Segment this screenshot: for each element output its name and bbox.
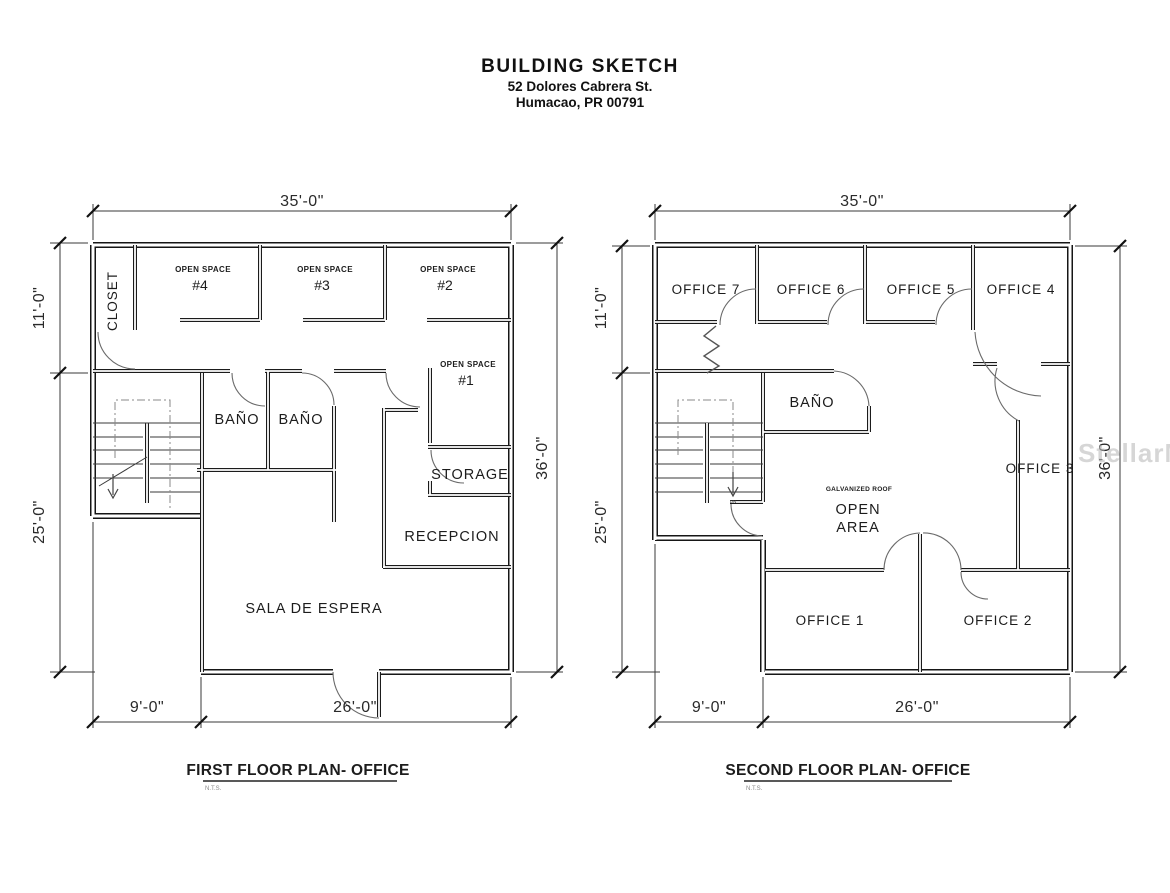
room-label-office6: OFFICE 6 xyxy=(777,282,846,297)
dim-left-lower: 25'-0" xyxy=(31,500,48,544)
first-floor-title: FIRST FLOOR PLAN- OFFICE xyxy=(186,762,409,779)
room-label-storage: STORAGE xyxy=(431,467,509,483)
second-floor-interior-walls xyxy=(655,245,1070,672)
first-floor-door-arcs xyxy=(98,332,464,718)
stair-break-line xyxy=(99,457,147,486)
room-label-unit-1: #1 xyxy=(458,372,474,388)
first-floor-room-labels: CLOSET OPEN SPACE #4 OPEN SPACE #3 OPEN … xyxy=(105,265,509,617)
extension-lines xyxy=(50,204,563,728)
room-label-bano-right: BAÑO xyxy=(278,411,323,428)
room-label-sala-de-espera: SALA DE ESPERA xyxy=(245,601,382,617)
second-floor-scale-note: N.T.S. xyxy=(746,786,763,792)
room-label-reception: RECEPCION xyxy=(404,529,499,545)
second-floor-perimeter-walls xyxy=(655,245,1070,672)
dim-left-lower: 25'-0" xyxy=(593,500,610,544)
stair-down-note: DN xyxy=(730,499,737,504)
room-label-office3: OFFICE 3 xyxy=(1006,461,1075,476)
floor-plans-drawing: 35'-0" 11'-0" 25'-0" 36'-0" 9'-0" 26'-0"… xyxy=(0,0,1170,893)
second-floor-room-labels: OFFICE 7 OFFICE 6 OFFICE 5 OFFICE 4 BAÑO… xyxy=(672,282,1075,628)
room-label-office5: OFFICE 5 xyxy=(887,282,956,297)
dim-right: 36'-0" xyxy=(534,436,551,480)
second-floor-interior-walls-inner xyxy=(655,245,1070,672)
room-label-closet: CLOSET xyxy=(105,271,120,331)
room-label-unit-3: #3 xyxy=(314,277,330,293)
room-label-open-space-1: OPEN SPACE xyxy=(440,360,496,369)
room-label-open-area-line2: AREA xyxy=(836,520,880,536)
room-label-open-area-line1: OPEN xyxy=(835,502,880,518)
room-label-open-space-2: OPEN SPACE xyxy=(420,265,476,274)
room-label-office2: OFFICE 2 xyxy=(964,613,1033,628)
room-label-office7: OFFICE 7 xyxy=(672,282,741,297)
wall-break-zigzag-icon xyxy=(704,326,719,373)
watermark: StellarMLS xyxy=(1078,438,1170,468)
first-floor-scale-note: N.T.S. xyxy=(205,786,222,792)
room-label-bano: BAÑO xyxy=(789,394,834,411)
second-floor-title: SECOND FLOOR PLAN- OFFICE xyxy=(725,762,970,779)
first-floor-plan: 35'-0" 11'-0" 25'-0" 36'-0" 9'-0" 26'-0"… xyxy=(31,193,563,792)
dim-left-upper: 11'-0" xyxy=(31,287,48,330)
dim-top: 35'-0" xyxy=(840,193,884,210)
dim-top: 35'-0" xyxy=(280,193,324,210)
room-label-unit-4: #4 xyxy=(192,277,208,293)
roof-note: GALVANIZED ROOF xyxy=(826,486,892,493)
room-label-open-space-3: OPEN SPACE xyxy=(297,265,353,274)
room-label-bano-left: BAÑO xyxy=(214,411,259,428)
second-floor-plan: DN 35'-0" 11'-0" 25'-0" 36'-0" 9'-0" 26'… xyxy=(593,193,1127,792)
second-floor-door-arcs xyxy=(720,289,1041,599)
dim-bottom-right: 26'-0" xyxy=(895,699,939,716)
building-sketch-page: BUILDING SKETCH 52 Dolores Cabrera St. H… xyxy=(0,0,1170,893)
dim-bottom-right: 26'-0" xyxy=(333,699,377,716)
second-floor-perimeter-walls-inner xyxy=(655,245,1070,672)
room-label-unit-2: #2 xyxy=(437,277,453,293)
dim-left-upper: 11'-0" xyxy=(593,287,610,330)
second-floor-stairs: DN xyxy=(655,400,763,504)
dim-bottom-left: 9'-0" xyxy=(692,699,726,716)
room-label-office4: OFFICE 4 xyxy=(987,282,1056,297)
dim-bottom-left: 9'-0" xyxy=(130,699,164,716)
room-label-office1: OFFICE 1 xyxy=(796,613,865,628)
room-label-open-space-4: OPEN SPACE xyxy=(175,265,231,274)
